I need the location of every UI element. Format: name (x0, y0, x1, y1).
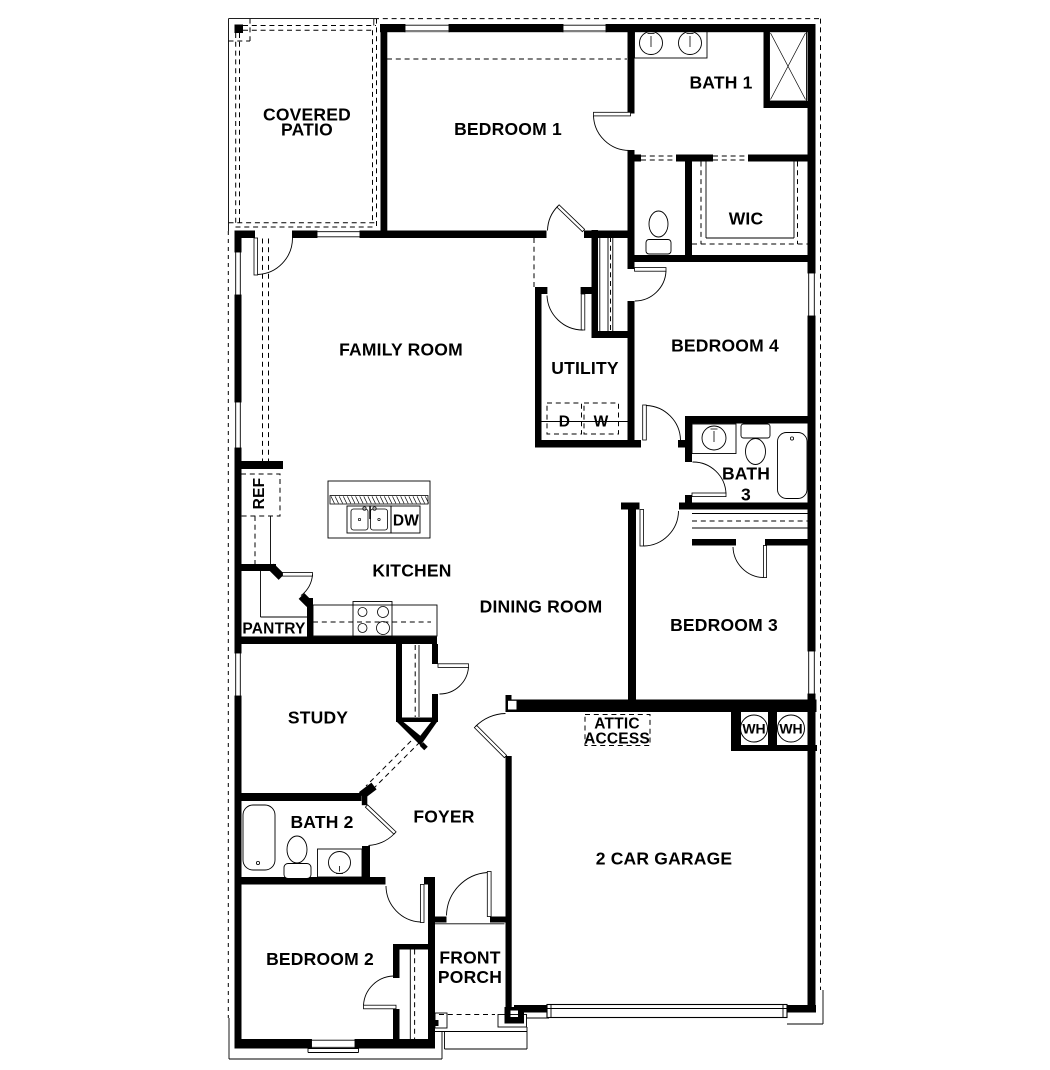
svg-text:WH: WH (742, 721, 765, 737)
svg-text:STUDY: STUDY (288, 707, 348, 727)
svg-text:FAMILY ROOM: FAMILY ROOM (339, 339, 463, 359)
svg-text:BATH: BATH (722, 463, 770, 483)
svg-text:FOYER: FOYER (413, 806, 474, 826)
svg-text:D: D (559, 414, 570, 431)
svg-text:PATIO: PATIO (281, 119, 333, 139)
svg-text:2 CAR GARAGE: 2 CAR GARAGE (596, 848, 733, 868)
svg-text:BEDROOM 2: BEDROOM 2 (266, 949, 374, 969)
svg-text:WH: WH (779, 721, 802, 737)
svg-text:PANTRY: PANTRY (242, 621, 306, 638)
svg-text:UTILITY: UTILITY (551, 358, 619, 378)
svg-text:W: W (594, 414, 609, 431)
svg-text:BEDROOM 3: BEDROOM 3 (670, 615, 778, 635)
svg-text:PORCH: PORCH (438, 967, 502, 987)
svg-text:BATH 2: BATH 2 (290, 812, 353, 832)
svg-text:BATH 1: BATH 1 (689, 72, 752, 92)
svg-text:DINING ROOM: DINING ROOM (480, 596, 603, 616)
svg-text:BEDROOM 4: BEDROOM 4 (671, 335, 779, 355)
svg-text:3: 3 (741, 484, 751, 504)
svg-text:KITCHEN: KITCHEN (372, 560, 451, 580)
svg-text:FRONT: FRONT (439, 947, 500, 967)
svg-text:REF: REF (251, 478, 268, 510)
svg-text:ACCESS: ACCESS (584, 731, 650, 748)
svg-text:DW: DW (393, 513, 419, 530)
svg-text:BEDROOM 1: BEDROOM 1 (454, 119, 562, 139)
svg-text:WIC: WIC (729, 208, 764, 228)
